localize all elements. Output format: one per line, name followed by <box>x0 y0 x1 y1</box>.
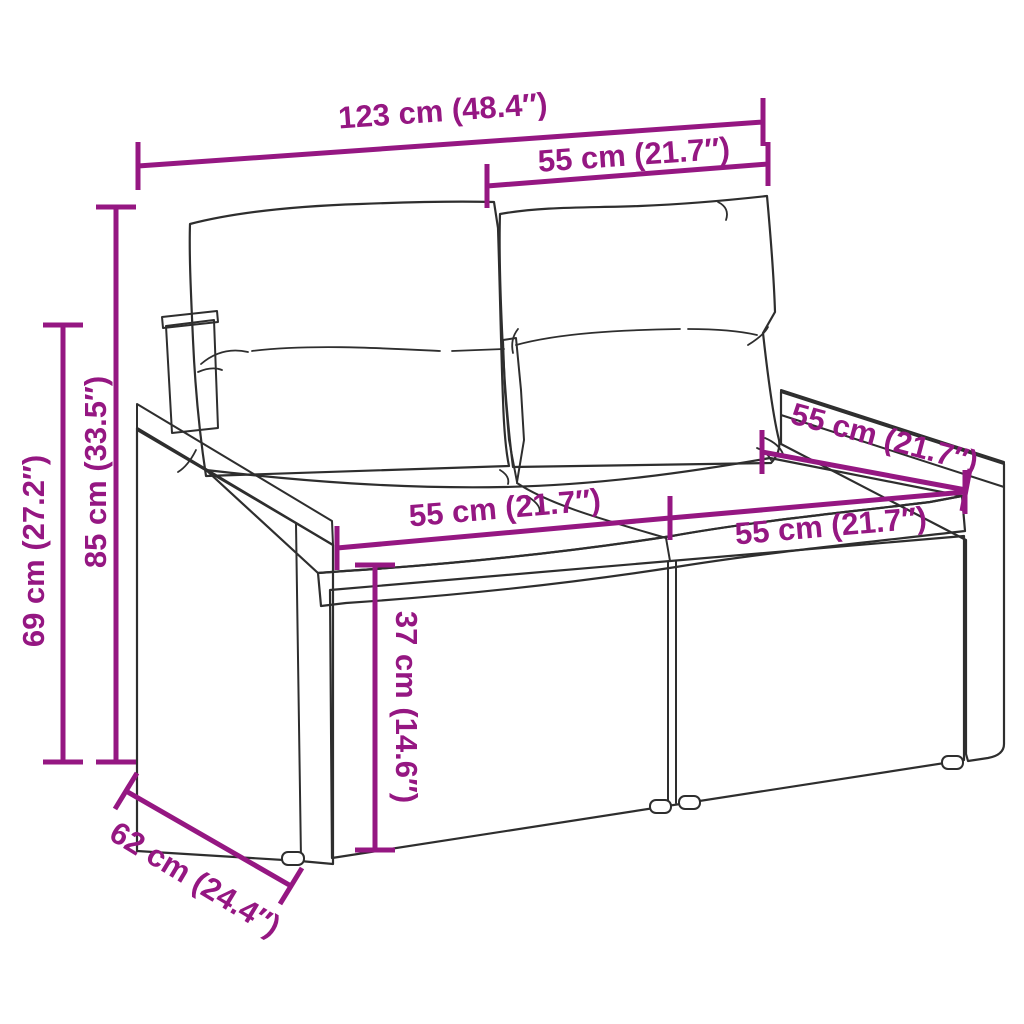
dim-armrest-height-label: 69 cm (27.2″) <box>16 455 51 647</box>
dim-overall-depth-label: 62 cm (24.4″) <box>104 814 287 943</box>
back-cushion-right <box>500 196 783 467</box>
backrest-post-left <box>162 311 218 433</box>
dim-total-height-label: 85 cm (33.5″) <box>78 376 113 568</box>
dim-seat-height: 37 cm (14.6″) <box>355 565 424 850</box>
back-cushion-left <box>178 202 509 476</box>
product-dimension-diagram: 123 cm (48.4″) 55 cm (21.7″) 85 cm (33.5… <box>0 0 1024 1024</box>
back-cushion-right-crease <box>512 202 783 460</box>
seat-base-seam <box>668 561 676 806</box>
dim-total-height: 85 cm (33.5″) <box>78 207 136 762</box>
dim-overall-width-label: 123 cm (48.4″) <box>337 86 549 136</box>
backrest-strip-center <box>503 338 524 482</box>
armrest-left-corner-edge <box>296 524 301 859</box>
dim-upper-section-width: 55 cm (21.7″) <box>487 131 768 208</box>
seat-base <box>330 536 964 858</box>
back-cushion-left-crease <box>178 347 504 472</box>
dim-seat-height-label: 37 cm (14.6″) <box>389 611 424 803</box>
diagram-canvas: 123 cm (48.4″) 55 cm (21.7″) 85 cm (33.5… <box>0 0 1024 1024</box>
dim-armrest-height: 69 cm (27.2″) <box>16 325 83 762</box>
